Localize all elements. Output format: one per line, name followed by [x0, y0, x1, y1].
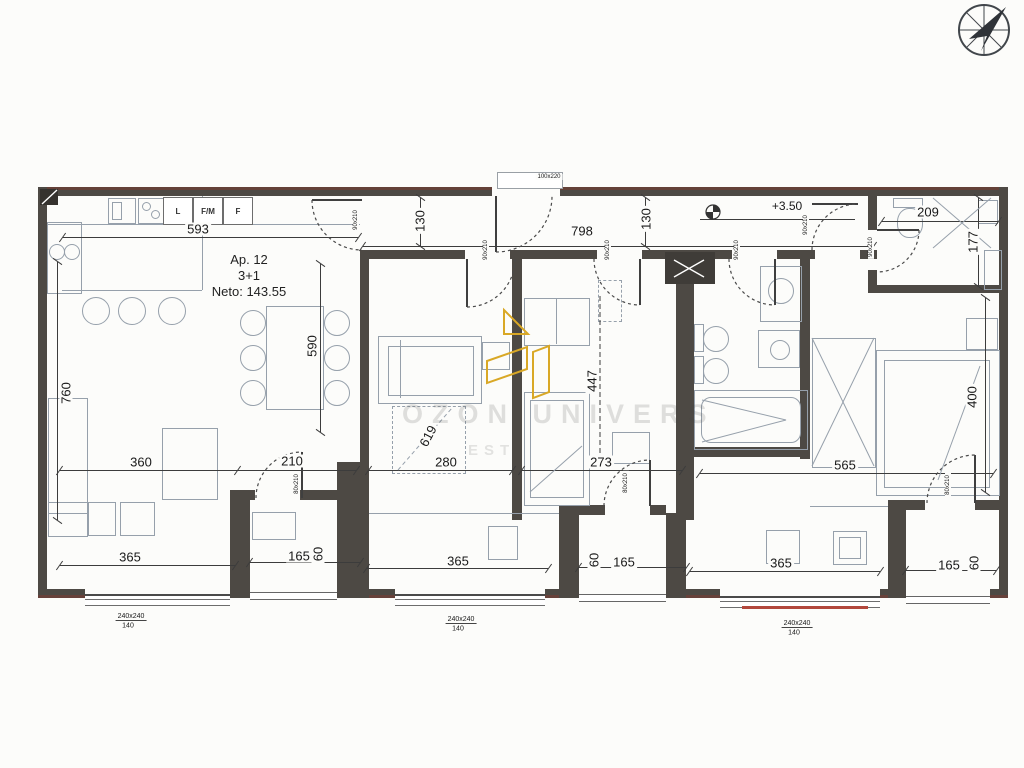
- dimension-label: 210: [279, 455, 305, 468]
- loggia-railing: [250, 592, 337, 600]
- coffee-table: [162, 428, 218, 500]
- apartment-net-area: Neto: 143.55: [186, 284, 312, 300]
- bar-stool: [118, 297, 146, 325]
- dimension-label: 90x210: [734, 238, 740, 262]
- loggia-bench: [252, 512, 296, 540]
- dimension-label: 80x210: [294, 472, 300, 496]
- dimension-label: 90x210: [868, 235, 874, 259]
- window: [85, 594, 230, 606]
- apartment-number: Ap. 12: [186, 252, 312, 268]
- dimension-label: 360: [128, 456, 154, 469]
- window: [395, 594, 545, 606]
- dimension-label: 165: [286, 550, 312, 563]
- dimension-label: 447: [586, 368, 599, 394]
- dimension-label: 165: [611, 556, 637, 569]
- nightstand: [482, 342, 510, 370]
- dimension-label: 130: [640, 206, 653, 232]
- appliance-box-F: F: [223, 197, 253, 225]
- dining-chair: [240, 310, 266, 336]
- watermark-subtitle: EST: [468, 442, 515, 459]
- dimension-label: 240x240: [782, 620, 813, 628]
- dining-chair: [240, 380, 266, 406]
- dimension-label: 130: [414, 208, 427, 234]
- dimension-label: 209: [915, 206, 941, 219]
- dimension-label: 593: [185, 223, 211, 236]
- dimension-label: 90x210: [605, 238, 611, 262]
- apartment-info: Ap. 12 3+1 Neto: 143.55: [186, 252, 312, 300]
- dimension-label: 90x210: [803, 213, 809, 237]
- dimension-label: 240x240: [446, 616, 477, 624]
- chair: [612, 432, 650, 464]
- bar-stool: [82, 297, 110, 325]
- dimension-label: 565: [832, 459, 858, 472]
- dimension-label: 273: [588, 456, 614, 469]
- dimension-label: 280: [433, 456, 459, 469]
- dimension-label: 798: [569, 225, 595, 238]
- apartment-layout: 3+1: [186, 268, 312, 284]
- watermark-title: OZON UNIVERS: [402, 399, 716, 430]
- dimension-label: +3.50: [770, 200, 804, 212]
- dining-chair: [240, 345, 266, 371]
- dimension-label: 140: [450, 626, 466, 633]
- island-counter: [62, 290, 202, 291]
- elevation-marker-icon: [706, 205, 720, 219]
- closet-2: [524, 298, 590, 346]
- section-marker: [40, 189, 58, 205]
- dimension-label: 80x210: [623, 471, 629, 495]
- dimension-label: 165: [936, 559, 962, 572]
- compass-icon: [948, 0, 1020, 66]
- dimension-label: 760: [60, 380, 73, 406]
- dining-chair: [324, 345, 350, 371]
- dimension-label: 90x210: [483, 238, 489, 262]
- bar-stool: [158, 297, 186, 325]
- dimension-label: 365: [445, 555, 471, 568]
- dimension-label: 100x220: [535, 174, 562, 180]
- dimension-label: 140: [120, 623, 136, 630]
- dimension-label: 140: [786, 630, 802, 637]
- nightstand: [966, 318, 998, 350]
- dimension-label: 365: [768, 557, 794, 570]
- floor-plan: L F/M F: [0, 0, 1024, 768]
- dining-chair: [324, 380, 350, 406]
- loggia-railing: [579, 594, 666, 602]
- dimension-label: 590: [306, 333, 319, 359]
- dimension-label: 80x210: [945, 473, 951, 497]
- dimension-label: 60: [312, 545, 325, 563]
- dimension-label: 400: [966, 384, 979, 410]
- north-arrow: [969, 7, 1006, 51]
- dimension-label: 60: [968, 554, 981, 572]
- red-sill: [742, 606, 868, 609]
- dimension-label: 240x240: [116, 613, 147, 621]
- toilet: [703, 326, 729, 352]
- dimension-label: 90x210: [353, 208, 359, 232]
- dimension-label: 177: [967, 229, 980, 255]
- dining-chair: [324, 310, 350, 336]
- sofa: [48, 398, 88, 514]
- dimension-label: 60: [588, 551, 601, 569]
- ventilation-shaft: [665, 252, 715, 284]
- radiator: [984, 250, 1002, 290]
- wardrobe-x: [812, 338, 876, 468]
- dimension-label: 365: [117, 551, 143, 564]
- loggia-railing: [906, 596, 990, 604]
- bidet: [703, 358, 729, 384]
